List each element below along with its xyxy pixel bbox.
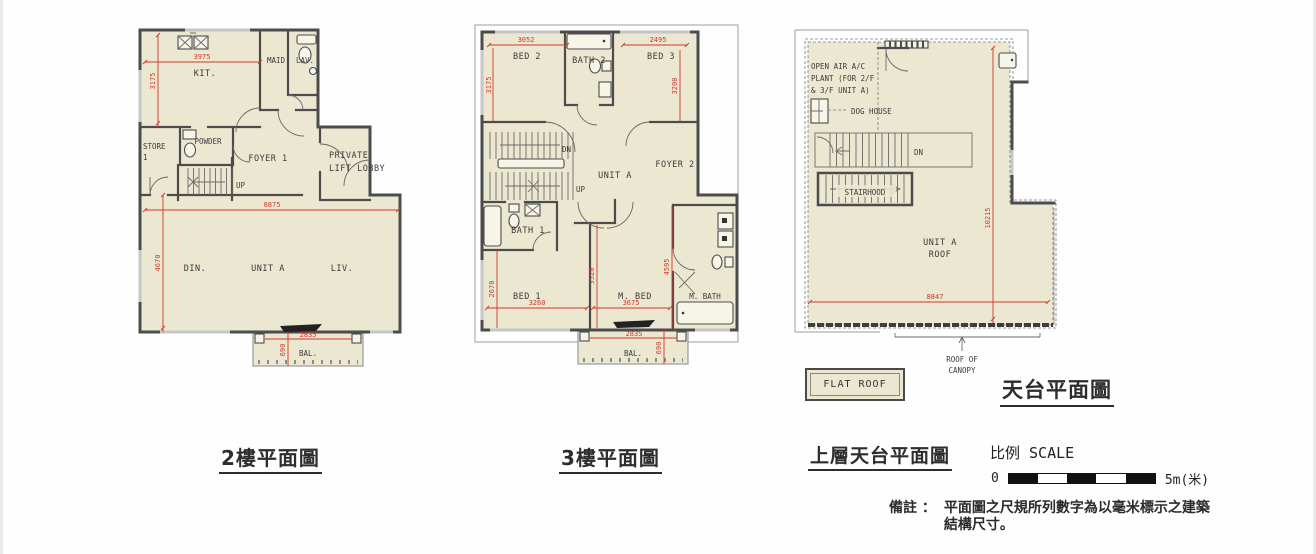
room-label-foyer2: FOYER 2	[655, 160, 694, 170]
room-label-balcony-2f: BAL.	[299, 349, 317, 358]
room-label-store-line1: STORE	[143, 142, 166, 151]
label-ac-plant-line3: & 3/F UNIT A)	[811, 86, 870, 95]
dim-balcony-width-3f: 2835	[626, 330, 643, 338]
remark-note: 備註 ： 平面圖之尺規所列數字為以毫米標示之建築 結構尺寸。	[889, 500, 1210, 534]
remark-text: 平面圖之尺規所列數字為以毫米標示之建築 結構尺寸。	[944, 500, 1210, 534]
label-dog-house: DOG HOUSE	[851, 107, 892, 116]
label-roof-of-canopy-line2: CANOPY	[948, 366, 976, 375]
room-label-unit-a-3f: UNIT A	[598, 171, 632, 181]
floorplan-sheet: 3975 3175 8875 4670 2835 690 KIT. MAID L…	[0, 0, 1316, 554]
room-label-foyer1: FOYER 1	[248, 154, 287, 164]
page-left-edge	[0, 0, 3, 554]
dim-bed2-width: 3052	[518, 36, 535, 44]
room-label-powder: POWDER	[194, 137, 222, 146]
label-ac-plant-line1: OPEN AIR A/C	[811, 62, 865, 71]
remark-label: 備註 ：	[889, 500, 936, 534]
roof-plan-title: 天台平面圖	[1000, 374, 1114, 407]
dim-kit-width: 3975	[194, 53, 211, 61]
dim-main-width: 8875	[264, 201, 281, 209]
room-label-bed1: BED 1	[513, 292, 541, 302]
room-label-balcony-3f: BAL.	[624, 349, 642, 358]
label-roof-of-canopy-line1: ROOF OF	[946, 355, 978, 364]
dim-roof-width: 8847	[927, 293, 944, 301]
remark-line1: 平面圖之尺規所列數字為以毫米標示之建築	[944, 500, 1210, 517]
stair-label-up-3f: UP	[576, 185, 586, 194]
room-label-bed2: BED 2	[513, 52, 541, 62]
dim-kit-height: 3175	[149, 73, 157, 90]
dim-bed1-height: 2670	[488, 281, 496, 298]
caption-floor3: 3樓平面圖	[559, 442, 662, 474]
dim-main-height: 4670	[154, 255, 162, 272]
scale-label: 比例 SCALE	[990, 442, 1074, 463]
room-label-bed3: BED 3	[647, 52, 675, 62]
room-label-lav: LAV.	[296, 56, 314, 65]
room-label-store-line2: 1	[143, 153, 148, 162]
label-unit-a-roof-line1: UNIT A	[923, 238, 957, 248]
dim-roof-height: 10215	[984, 207, 992, 228]
room-label-private: PRIVATE	[329, 151, 368, 161]
dim-bed2-height: 3175	[485, 77, 493, 94]
scale-bar: 0 5m(米)	[991, 469, 1209, 488]
room-label-kitchen: KIT.	[194, 69, 216, 79]
floor3-plan-drawing: 3052 2495 3175 3200 2670 3260 3520 3675 …	[465, 10, 755, 380]
scale-zero: 0	[991, 471, 999, 486]
stair-label-dn-3f: DN	[562, 145, 571, 154]
roof-plan-drawing: 10215 8847 OPEN AIR A/C PLANT (FOR 2/F &…	[790, 15, 1070, 375]
remark-line2: 結構尺寸。	[944, 517, 1210, 534]
dim-hall-height: 3520	[588, 268, 596, 285]
caption-upper-roof: 上層天台平面圖	[808, 441, 952, 471]
floor2-plan-drawing: 3975 3175 8875 4670 2835 690 KIT. MAID L…	[130, 10, 420, 380]
stair-label-up-2f: UP	[236, 181, 246, 190]
scale-five: 5m(米)	[1165, 469, 1209, 488]
room-label-mbath: M. BATH	[689, 292, 721, 301]
room-label-bath1: BATH 1	[511, 226, 545, 236]
dim-balcony-width: 2835	[300, 331, 317, 339]
label-ac-plant-line2: PLANT (FOR 2/F	[811, 74, 875, 83]
room-label-living: LIV.	[331, 264, 353, 274]
scale-bar-graphic	[1008, 473, 1156, 484]
dim-mbed-height: 4595	[663, 259, 671, 276]
room-label-lift-lobby: LIFT LOBBY	[329, 164, 385, 174]
dim-bed3-height: 3200	[671, 78, 679, 95]
flat-roof-legend-label: FLAT ROOF	[810, 373, 900, 396]
stair-label-dn-roof: DN	[914, 148, 923, 157]
dim-balcony-depth: 690	[279, 344, 287, 357]
room-label-unit-a-2f: UNIT A	[251, 264, 285, 274]
room-label-maid: MAID	[267, 56, 286, 65]
label-stairhood: STAIRHOOD	[845, 188, 886, 197]
room-label-bath2: BATH 2	[572, 56, 606, 66]
dim-bed3-width: 2495	[650, 36, 667, 44]
dim-balcony-depth-3f: 690	[655, 342, 663, 355]
label-unit-a-roof-line2: ROOF	[929, 250, 951, 260]
room-label-mbed: M. BED	[618, 292, 652, 302]
caption-floor2: 2樓平面圖	[219, 442, 322, 474]
flat-roof-legend: FLAT ROOF	[805, 368, 905, 401]
room-label-dining: DIN.	[184, 264, 206, 274]
